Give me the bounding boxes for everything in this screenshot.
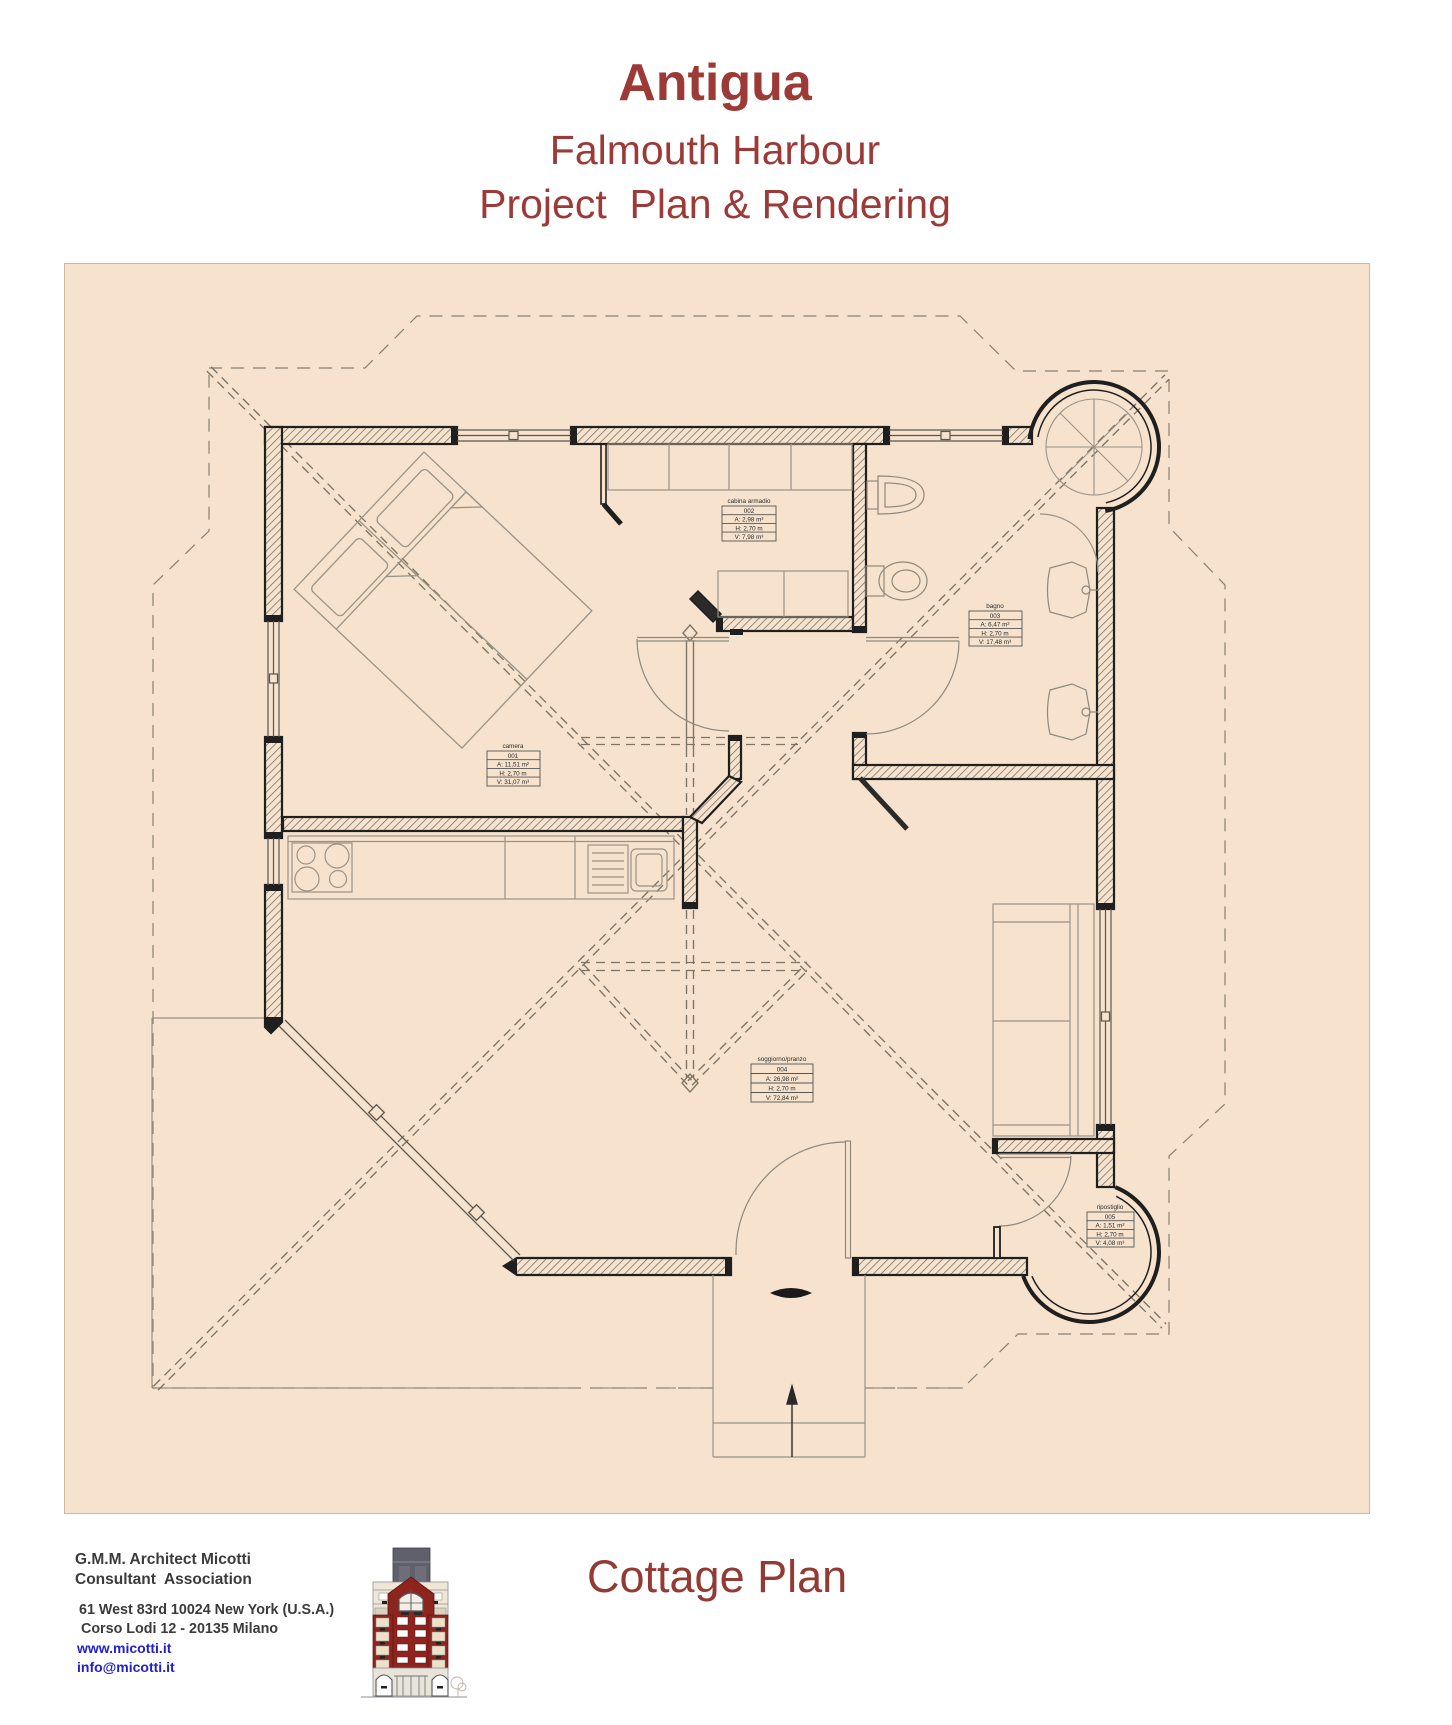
svg-text:A: 11,51 m²: A: 11,51 m² [497,762,529,769]
svg-text:004: 004 [777,1067,788,1074]
svg-text:V: 31,07 m³: V: 31,07 m³ [497,779,529,786]
svg-text:H: 2,70 m: H: 2,70 m [1096,1231,1123,1238]
svg-text:V: 17,48 m³: V: 17,48 m³ [979,639,1011,646]
svg-text:A: 1,51 m²: A: 1,51 m² [1095,1223,1124,1230]
svg-text:A: 2,98 m²: A: 2,98 m² [734,517,763,524]
svg-text:003: 003 [990,613,1001,620]
svg-text:V: 4,08 m³: V: 4,08 m³ [1096,1240,1125,1247]
svg-text:H: 2,70 m: H: 2,70 m [768,1086,795,1093]
svg-text:ripostiglio: ripostiglio [1097,1204,1124,1211]
svg-text:camera: camera [503,743,524,750]
svg-text:bagno: bagno [986,603,1004,610]
svg-text:A: 26,98 m²: A: 26,98 m² [766,1076,799,1083]
svg-text:soggiorno/pranzo: soggiorno/pranzo [758,1056,807,1063]
svg-text:cabina armadio: cabina armadio [727,498,771,505]
svg-text:005: 005 [1105,1214,1116,1221]
svg-text:002: 002 [744,508,755,515]
svg-text:H: 2,70 m: H: 2,70 m [981,630,1008,637]
svg-text:H: 2,70 m: H: 2,70 m [735,525,762,532]
svg-text:A: 6,47 m²: A: 6,47 m² [980,622,1009,629]
svg-text:V: 7,98 m³: V: 7,98 m³ [735,534,764,541]
svg-text:001: 001 [508,753,519,760]
svg-text:V: 72,84 m³: V: 72,84 m³ [766,1095,798,1102]
svg-text:H: 2,70 m: H: 2,70 m [499,770,526,777]
